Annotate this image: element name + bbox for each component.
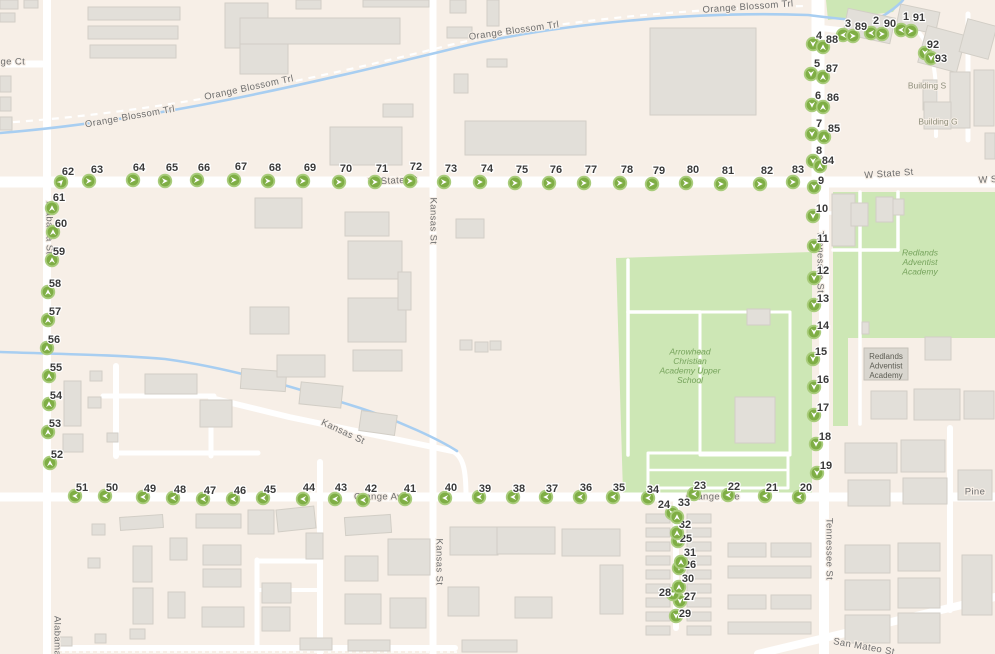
poi-label: Academy Upper — [659, 365, 722, 375]
route-marker-number: 91 — [913, 12, 925, 24]
route-marker-number: 31 — [684, 547, 696, 559]
route-marker-number: 70 — [340, 163, 352, 175]
map-canvas[interactable]: nge CtOrange Blossom TrlOrange Blossom T… — [0, 0, 995, 654]
route-marker-number: 63 — [91, 164, 103, 176]
route-marker-number: 93 — [935, 53, 947, 65]
route-marker-number: 20 — [800, 482, 812, 494]
route-marker-number: 52 — [51, 449, 63, 461]
route-marker-number: 60 — [55, 218, 67, 230]
route-marker-number: 35 — [613, 482, 625, 494]
map-base: nge CtOrange Blossom TrlOrange Blossom T… — [0, 0, 995, 654]
route-marker-number: 57 — [49, 306, 61, 318]
route-marker-number: 46 — [234, 485, 246, 497]
poi-label: Redlands — [902, 247, 939, 257]
route-marker-number: 11 — [817, 233, 829, 245]
route-marker-number: 83 — [792, 164, 804, 176]
route-marker-number: 44 — [303, 482, 316, 494]
route-marker-number: 73 — [445, 163, 457, 175]
route-marker-number: 7 — [816, 118, 822, 130]
route-marker-number: 15 — [815, 346, 827, 358]
street-label: Pine — [965, 487, 986, 498]
route-marker-number: 14 — [817, 320, 830, 332]
route-marker-number: 90 — [884, 18, 896, 30]
route-marker-number: 23 — [694, 480, 706, 492]
route-marker-number: 18 — [819, 431, 831, 443]
route-marker-number: 54 — [50, 390, 63, 402]
poi-label: Academy — [901, 266, 938, 276]
route-marker-number: 3 — [845, 18, 851, 30]
route-marker-number: 38 — [513, 483, 525, 495]
street-label: Building S — [908, 80, 947, 90]
route-marker-number: 92 — [927, 39, 939, 51]
route-marker-number: 89 — [855, 21, 867, 33]
poi-label: Arrowhead — [668, 346, 710, 356]
route-marker-number: 13 — [817, 293, 829, 305]
route-marker-number: 12 — [817, 265, 829, 277]
poi-label: School — [677, 375, 704, 385]
route-marker-number: 88 — [826, 34, 838, 46]
route-marker-number: 61 — [53, 192, 65, 204]
route-marker-number: 87 — [826, 63, 838, 75]
route-marker-number: 53 — [49, 418, 61, 430]
route-marker-number: 1 — [903, 11, 909, 23]
poi-label: Academy — [869, 371, 902, 380]
route-marker-number: 37 — [546, 483, 558, 495]
route-marker-number: 86 — [827, 92, 839, 104]
route-marker-number: 36 — [580, 482, 592, 494]
poi-label: Adventist — [870, 362, 904, 371]
route-marker-number: 55 — [50, 362, 62, 374]
route-marker-number: 17 — [817, 402, 829, 414]
route-marker-number: 40 — [445, 482, 457, 494]
poi-label: Christian — [673, 356, 707, 366]
route-marker-number: 67 — [235, 161, 247, 173]
street-label: W S — [978, 174, 995, 186]
route-marker-number: 50 — [106, 482, 118, 494]
route-marker-93[interactable]: 93 — [925, 52, 947, 65]
route-marker-number: 6 — [815, 90, 821, 102]
route-marker-number: 41 — [404, 483, 416, 495]
route-marker-number: 80 — [687, 164, 699, 176]
route-marker-number: 66 — [198, 162, 210, 174]
route-marker-number: 34 — [647, 484, 660, 496]
route-marker-number: 2 — [873, 15, 879, 27]
route-marker-number: 21 — [766, 482, 778, 494]
route-marker-number: 51 — [76, 482, 88, 494]
route-marker-number: 72 — [410, 161, 422, 173]
route-marker-number: 10 — [816, 203, 828, 215]
route-marker-number: 47 — [204, 485, 216, 497]
street-label: Building G — [918, 116, 957, 126]
poi-label: Redlands — [869, 352, 903, 361]
route-marker-number: 27 — [684, 591, 696, 603]
street-label: Tennessee St — [823, 518, 834, 580]
park-redlands-strip — [833, 336, 848, 426]
route-marker-number: 24 — [658, 499, 671, 511]
route-marker-number: 69 — [304, 162, 316, 174]
route-marker-number: 49 — [144, 483, 156, 495]
route-marker-number: 62 — [62, 166, 74, 178]
route-marker-number: 28 — [659, 587, 671, 599]
route-marker-number: 71 — [376, 163, 388, 175]
route-marker-number: 78 — [621, 164, 633, 176]
street-label: Kansas St — [433, 539, 444, 586]
route-marker-number: 84 — [822, 155, 835, 167]
route-marker-number: 59 — [53, 246, 65, 258]
street-label: Kansas St — [427, 198, 438, 245]
route-marker-number: 43 — [335, 482, 347, 494]
route-marker-number: 42 — [365, 483, 377, 495]
route-marker-number: 29 — [679, 608, 691, 620]
route-marker-number: 79 — [653, 165, 665, 177]
route-marker-number: 56 — [48, 334, 60, 346]
route-marker-number: 65 — [166, 162, 178, 174]
route-marker-number: 76 — [550, 164, 562, 176]
route-marker-number: 58 — [49, 278, 61, 290]
route-marker-number: 64 — [133, 162, 146, 174]
route-marker-number: 77 — [585, 164, 597, 176]
route-marker-number: 82 — [761, 165, 773, 177]
route-marker-number: 85 — [828, 123, 840, 135]
route-marker-number: 48 — [174, 484, 186, 496]
route-marker-number: 39 — [479, 483, 491, 495]
poi-label: Adventist — [902, 257, 939, 267]
route-marker-number: 74 — [481, 163, 494, 175]
route-marker-number: 75 — [516, 164, 528, 176]
route-marker-number: 33 — [678, 497, 690, 509]
route-marker-number: 16 — [817, 374, 829, 386]
street-label: nge Ct — [0, 57, 25, 68]
route-marker-number: 22 — [728, 481, 740, 493]
route-marker-number: 19 — [820, 460, 832, 472]
route-marker-number: 9 — [818, 175, 824, 187]
street-label: Alabama — [51, 616, 62, 654]
route-marker-number: 68 — [269, 162, 281, 174]
route-marker-number: 30 — [682, 573, 694, 585]
route-marker-number: 45 — [264, 484, 276, 496]
route-marker-number: 81 — [722, 165, 734, 177]
route-marker-number: 5 — [814, 58, 820, 70]
